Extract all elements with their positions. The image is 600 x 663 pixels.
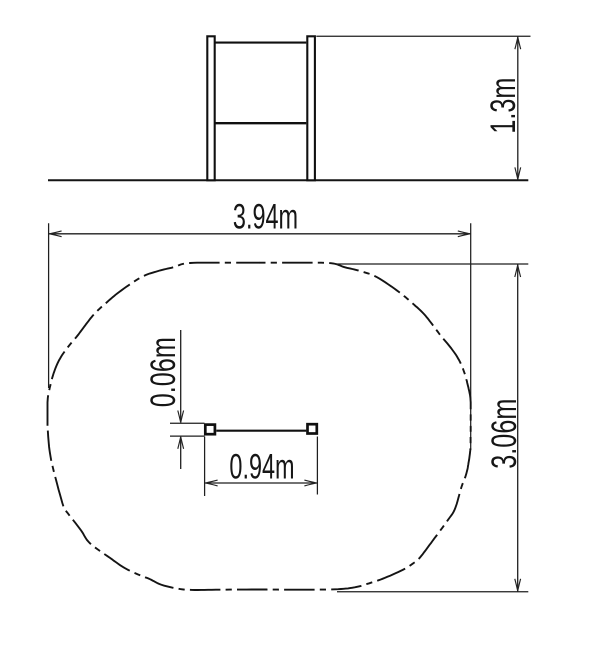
svg-text:3.94m: 3.94m — [233, 198, 298, 237]
svg-text:0.06m: 0.06m — [144, 337, 183, 407]
svg-text:3.06m: 3.06m — [485, 399, 524, 469]
svg-text:1.3m: 1.3m — [484, 78, 523, 134]
svg-text:0.94m: 0.94m — [229, 448, 294, 487]
